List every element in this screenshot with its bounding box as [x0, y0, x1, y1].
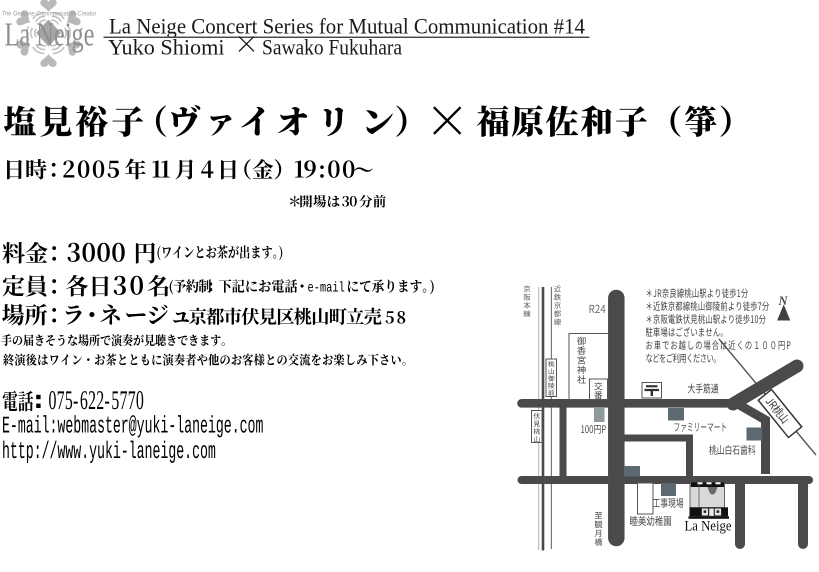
svg-text:N: N: [778, 294, 789, 308]
svg-text:Sawako Fukuhara: Sawako Fukuhara: [262, 35, 402, 60]
svg-text:La Neige: La Neige: [685, 519, 732, 535]
svg-text:Yuko Shiomi: Yuko Shiomi: [108, 35, 225, 60]
svg-text:La Neige: La Neige: [5, 16, 95, 53]
